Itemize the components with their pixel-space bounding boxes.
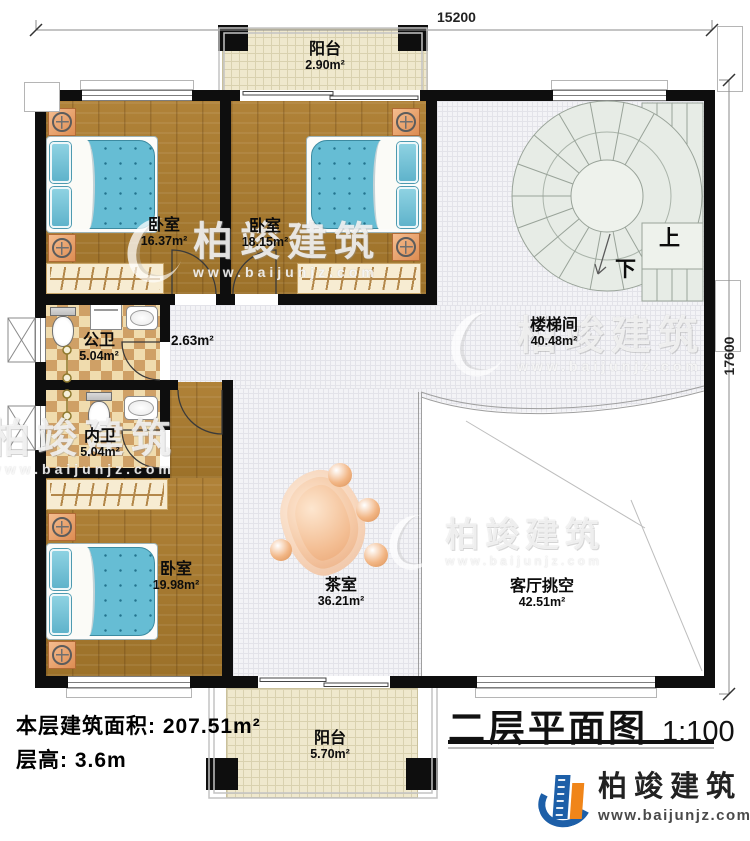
wall-below-bedrooms [216, 294, 235, 305]
company-website[interactable]: www.baijunjz.com [598, 808, 750, 823]
pillow [50, 142, 71, 183]
nightstand [48, 108, 76, 136]
corner-trim [24, 82, 60, 112]
window-living-void [477, 676, 655, 688]
toilet-tank [50, 307, 76, 316]
plan-scale: 1:100 [662, 716, 735, 749]
company-logo[interactable]: 柏竣建筑 www.baijunjz.com [538, 773, 750, 827]
window-bath-public [35, 318, 46, 362]
sink [124, 396, 158, 420]
stairs-up-label: 上 [659, 222, 680, 252]
bed-2 [306, 136, 422, 233]
corridor-floor [170, 305, 704, 388]
window-sill [551, 80, 668, 90]
nightstand [48, 641, 76, 669]
pillow [50, 594, 71, 635]
wardrobe-1 [46, 263, 164, 294]
wall-bath-bed3 [35, 468, 170, 478]
room-label-bedroom-3: 卧室 19.98m² [153, 562, 200, 592]
window-bath-ensuite [35, 406, 46, 450]
wall-corridor-end [222, 380, 233, 390]
nightstand [48, 234, 76, 262]
floor-height-text: 层高: 3.6m [16, 744, 127, 774]
wall-bath-right [160, 305, 170, 342]
pillow [50, 549, 71, 590]
company-logo-icon [538, 773, 590, 827]
company-name: 柏竣建筑 [598, 773, 750, 802]
balcony-column [206, 758, 238, 790]
room-label-stairwell: 楼梯间 40.48m² [530, 318, 578, 348]
pillow [397, 142, 418, 183]
window-sill [66, 688, 192, 698]
wall-bed2-hall [426, 101, 437, 294]
void-under-floor [421, 388, 704, 676]
bedroom-3-vestibule-floor [170, 382, 222, 478]
washing-machine [90, 304, 122, 330]
tea-room-door-gap [258, 676, 390, 688]
room-label-bath-public: 公卫 5.04m² [79, 333, 119, 363]
wall-bed1-bed2 [220, 101, 231, 294]
balcony-column [218, 25, 248, 51]
wall-below-bedrooms [278, 294, 437, 305]
title-underline-thin [448, 747, 714, 749]
logo-building-blue [552, 775, 570, 819]
bed-3 [46, 543, 158, 640]
balcony-door-gap [240, 90, 420, 101]
wardrobe-2 [297, 263, 421, 294]
nightstand [392, 233, 420, 261]
nightstand [48, 513, 76, 541]
floor-area-text: 本层建筑面积: 207.51m² [16, 710, 261, 740]
stair-hall-floor [437, 101, 704, 305]
room-label-living-void: 客厅挑空 42.51m² [510, 579, 574, 609]
room-label-bedroom-1: 卧室 16.37m² [141, 218, 188, 248]
dimension-right: 17600 [721, 324, 737, 388]
nightstand [392, 108, 420, 136]
room-label-balcony-top: 阳台 2.90m² [305, 42, 345, 72]
pebble [356, 498, 380, 522]
window-bedroom-3 [68, 676, 190, 688]
pebble [270, 539, 292, 561]
toilet-tank [86, 392, 112, 401]
room-label-tea-room: 茶室 36.21m² [318, 578, 365, 608]
wardrobe-3 [46, 479, 168, 510]
title-underline-thick [448, 740, 714, 744]
window-stairwell [553, 90, 666, 101]
logo-building-orange [570, 783, 585, 819]
stairs-down-label: 下 [615, 253, 636, 283]
wall-right [704, 90, 715, 688]
balcony-column [406, 758, 438, 790]
window-bedroom-1 [82, 90, 192, 101]
room-label-bath-ensuite: 内卫 5.04m² [80, 429, 120, 459]
pebble [364, 543, 388, 567]
window-sill [80, 80, 194, 90]
dimension-top: 15200 [437, 9, 476, 25]
floor-plan-canvas: 柏竣建筑 www.baijunjz.com 柏竣建筑 www.baijunjz.… [0, 0, 750, 841]
balcony-column [398, 25, 428, 51]
pebble [328, 463, 352, 487]
wall-bath-divider [35, 380, 178, 390]
pillow [397, 187, 418, 228]
wall-below-bedrooms [35, 294, 175, 305]
room-label-bedroom-2: 卧室 18.15m² [242, 219, 289, 249]
pillow [50, 187, 71, 228]
sink [126, 306, 158, 330]
toilet-bowl [52, 316, 74, 347]
wall-bed3-tearoom [222, 390, 233, 676]
window-sill [475, 688, 657, 698]
corner-trim [717, 26, 743, 92]
room-label-corridor: 2.63m² [171, 333, 214, 348]
room-label-balcony-bottom: 阳台 5.70m² [310, 731, 350, 761]
